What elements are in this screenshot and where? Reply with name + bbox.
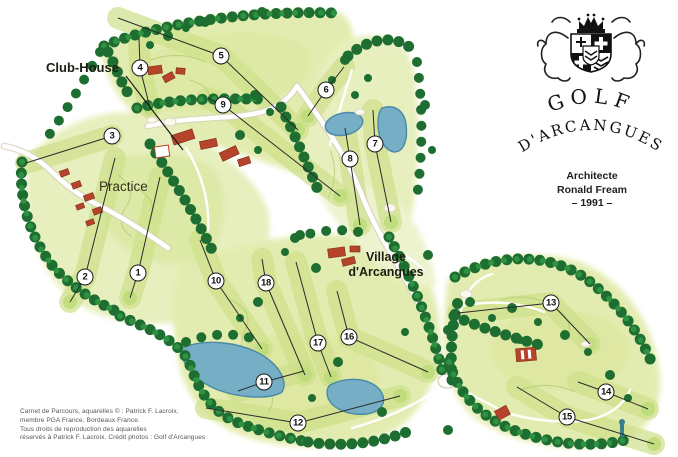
- hole-marker-12: 12: [290, 415, 307, 432]
- hole-marker-7: 7: [367, 136, 384, 153]
- architect-line2: Ronald Fream: [513, 184, 671, 198]
- village-label: Village d'Arcangues: [330, 250, 442, 280]
- hole-marker-11: 11: [256, 374, 273, 391]
- hole-marker-4: 4: [132, 60, 149, 77]
- hole-marker-10: 10: [208, 273, 225, 290]
- hole-marker-13: 13: [543, 295, 560, 312]
- hole-marker-1: 1: [130, 265, 147, 282]
- hole-marker-6: 6: [318, 82, 335, 99]
- lion-left-icon: [538, 18, 570, 82]
- hole-marker-2: 2: [77, 269, 94, 286]
- village-label-line2: d'Arcangues: [330, 265, 442, 280]
- credits-block: Carnet de Parcours, aquarelles © : Patri…: [20, 408, 205, 443]
- golf-arcangues-logo: GOLF D'ARCANGUES: [512, 8, 670, 160]
- golf-course-map-page: 123456789101112131415161718 Club-House P…: [0, 0, 678, 457]
- logo-title-golf: GOLF: [544, 83, 638, 117]
- hole-marker-14: 14: [598, 384, 615, 401]
- shield-icon: [571, 34, 611, 73]
- hole-marker-17: 17: [310, 335, 327, 352]
- hole-marker-5: 5: [213, 48, 230, 65]
- architect-line1: Architecte: [513, 170, 671, 184]
- hole-marker-8: 8: [342, 151, 359, 168]
- hole-marker-9: 9: [215, 97, 232, 114]
- architect-line3: – 1991 –: [513, 197, 671, 211]
- village-label-line1: Village: [330, 250, 442, 265]
- logo-title-arcangues: D'ARCANGUES: [515, 116, 667, 156]
- credits-line4: réservés à Patrick F. Lacroix. Crédit ph…: [20, 434, 205, 443]
- hole-marker-15: 15: [559, 409, 576, 426]
- hole-marker-18: 18: [258, 275, 275, 292]
- logo-title-arcangues-text: D'ARCANGUES: [515, 116, 667, 156]
- logo-title-golf-text: GOLF: [544, 83, 638, 117]
- lion-right-icon: [612, 18, 644, 82]
- hole-marker-3: 3: [104, 128, 121, 145]
- hole13-building: [516, 347, 537, 362]
- architect-block: Architecte Ronald Fream – 1991 –: [513, 170, 671, 211]
- credits-line1: Carnet de Parcours, aquarelles © : Patri…: [20, 408, 205, 417]
- crown-icon: [577, 14, 605, 33]
- credits-line3: Tous droits de reproduction des aquarell…: [20, 426, 205, 435]
- credits-line2: membre PGA France, Bordeaux France.: [20, 417, 205, 426]
- club-house-label: Club-House: [46, 60, 119, 75]
- practice-label: Practice: [99, 179, 148, 194]
- hole-marker-16: 16: [341, 329, 358, 346]
